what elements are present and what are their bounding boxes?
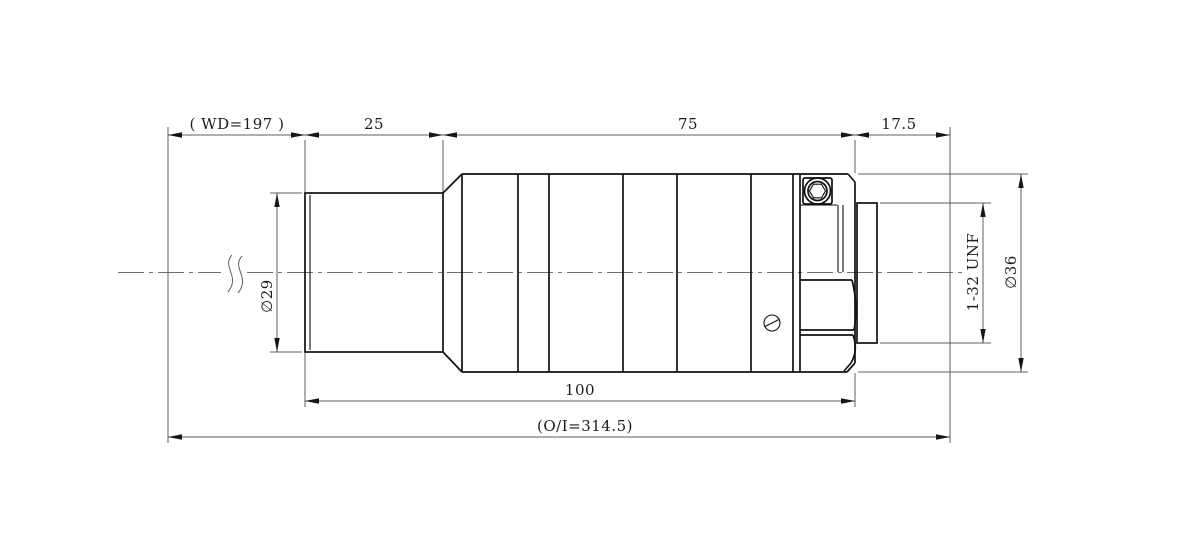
top-dimension-chain: ( WD=197 ) 25 75 17.5 [168,115,950,138]
dim-object-to-image: (O/I=314.5) [537,417,633,435]
dim-body-diameter: ∅36 [1002,255,1020,289]
object-image-dimension: (O/I=314.5) [168,417,950,440]
drawing-sheet: ( WD=197 ) 25 75 17.5 100 (O/I=314.5) ∅2… [0,0,1200,540]
extension-lines [270,140,1028,407]
set-screw [764,315,780,331]
dim-front-section: 25 [364,115,384,133]
dim-mount-thread: 1-32 UNF [964,233,982,312]
hex-nut-section [800,280,856,371]
housing-length-dimension: 100 [305,381,855,404]
technical-drawing: ( WD=197 ) 25 75 17.5 100 (O/I=314.5) ∅2… [0,0,1200,540]
dim-front-diameter: ∅29 [258,279,276,313]
break-symbol [228,255,243,293]
dim-flange-to-image: 17.5 [881,115,916,133]
dim-housing-length: 100 [565,381,595,399]
dim-mid-section: 75 [678,115,698,133]
hex-socket-screw [803,178,832,204]
body-diameter-dimension: ∅36 [1002,174,1024,372]
mount-thread-dimension: 1-32 UNF [964,203,986,343]
dim-working-distance: ( WD=197 ) [190,115,285,133]
